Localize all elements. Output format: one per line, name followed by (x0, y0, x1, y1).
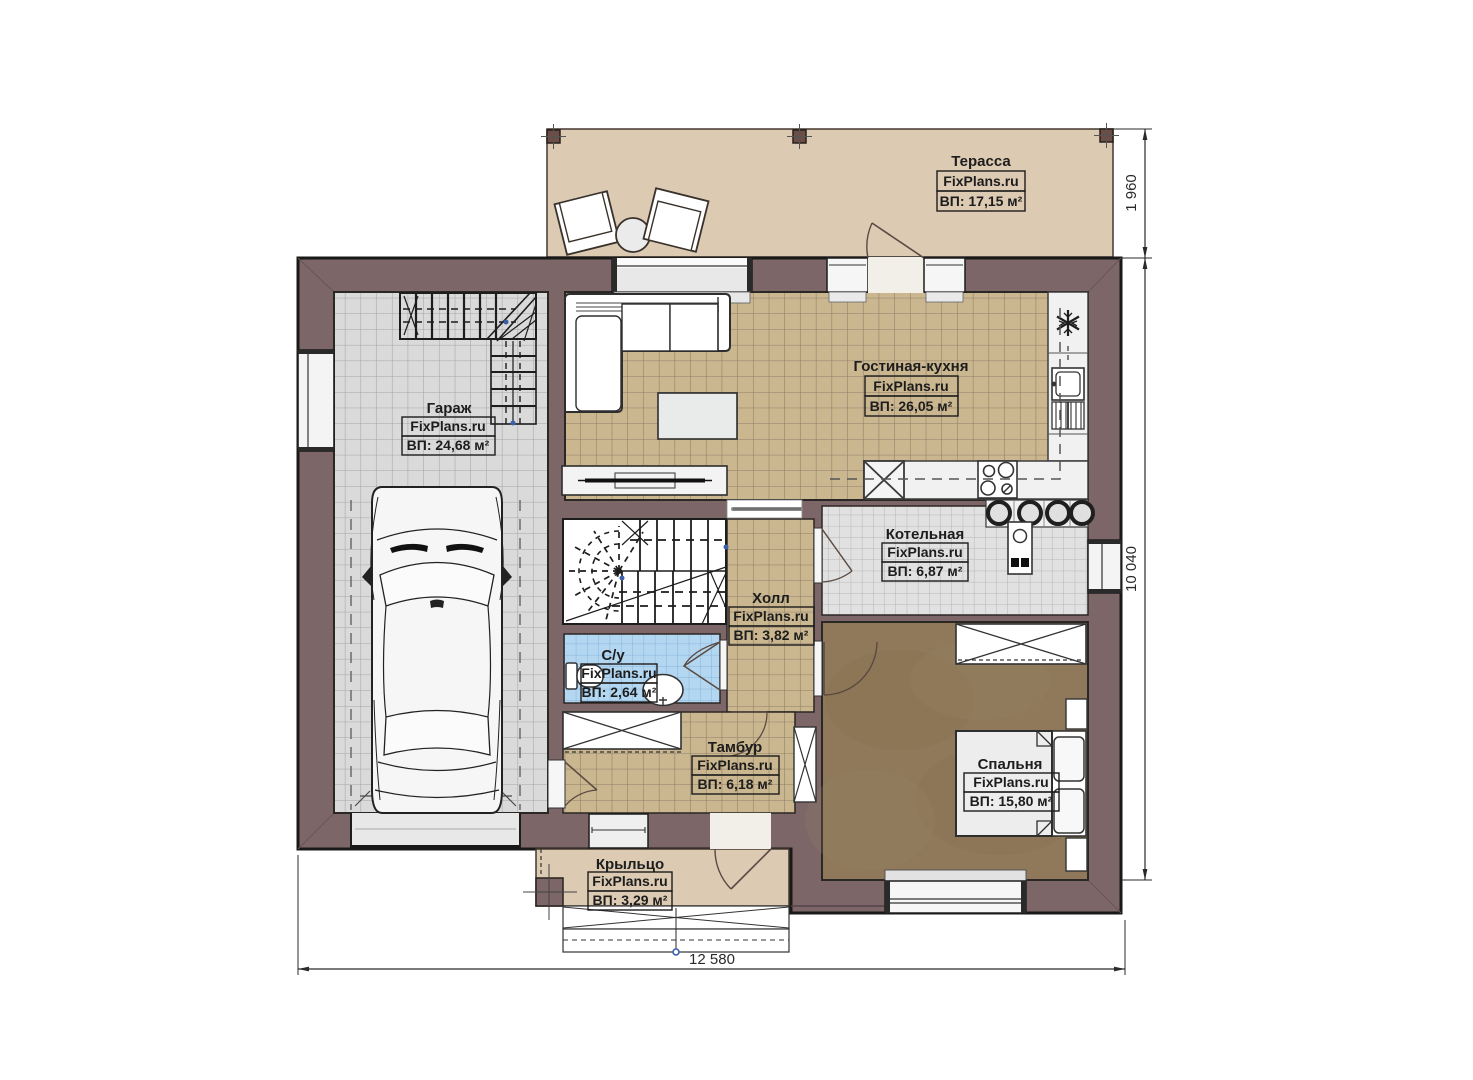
svg-text:Гараж: Гараж (427, 400, 472, 417)
svg-text:12 580: 12 580 (689, 951, 735, 968)
svg-text:Котельная: Котельная (886, 526, 965, 543)
svg-text:Холл: Холл (752, 590, 790, 607)
svg-text:FixPlans.ru: FixPlans.ru (943, 173, 1018, 189)
svg-text:ВП: 15,80 м²: ВП: 15,80 м² (970, 793, 1053, 809)
svg-text:ВП: 2,64 м²: ВП: 2,64 м² (582, 684, 657, 700)
svg-text:FixPlans.ru: FixPlans.ru (873, 378, 948, 394)
svg-text:FixPlans.ru: FixPlans.ru (887, 544, 962, 560)
svg-text:Крыльцо: Крыльцо (596, 856, 664, 873)
svg-text:ВП: 3,82 м²: ВП: 3,82 м² (734, 627, 809, 643)
svg-text:FixPlans.ru: FixPlans.ru (592, 873, 667, 889)
svg-text:Тамбур: Тамбур (708, 739, 762, 756)
svg-text:Спальня: Спальня (978, 756, 1043, 773)
svg-text:ВП: 3,29 м²: ВП: 3,29 м² (593, 892, 668, 908)
svg-text:10 040: 10 040 (1123, 546, 1140, 592)
svg-text:FixPlans.ru: FixPlans.ru (410, 418, 485, 434)
svg-text:FixPlans.ru: FixPlans.ru (733, 608, 808, 624)
svg-text:Терасса: Терасса (951, 153, 1011, 170)
svg-text:ВП: 6,18 м²: ВП: 6,18 м² (698, 776, 773, 792)
svg-text:FixPlans.ru: FixPlans.ru (581, 665, 656, 681)
svg-text:FixPlans.ru: FixPlans.ru (973, 774, 1048, 790)
svg-text:ВП: 24,68 м²: ВП: 24,68 м² (407, 437, 490, 453)
svg-text:FixPlans.ru: FixPlans.ru (697, 757, 772, 773)
svg-text:С/у: С/у (601, 647, 625, 664)
svg-text:1 960: 1 960 (1123, 174, 1140, 212)
svg-text:ВП: 17,15 м²: ВП: 17,15 м² (940, 193, 1023, 209)
svg-text:Гостиная-кухня: Гостиная-кухня (854, 358, 969, 375)
svg-text:ВП: 26,05 м²: ВП: 26,05 м² (870, 398, 953, 414)
svg-text:ВП: 6,87 м²: ВП: 6,87 м² (888, 563, 963, 579)
